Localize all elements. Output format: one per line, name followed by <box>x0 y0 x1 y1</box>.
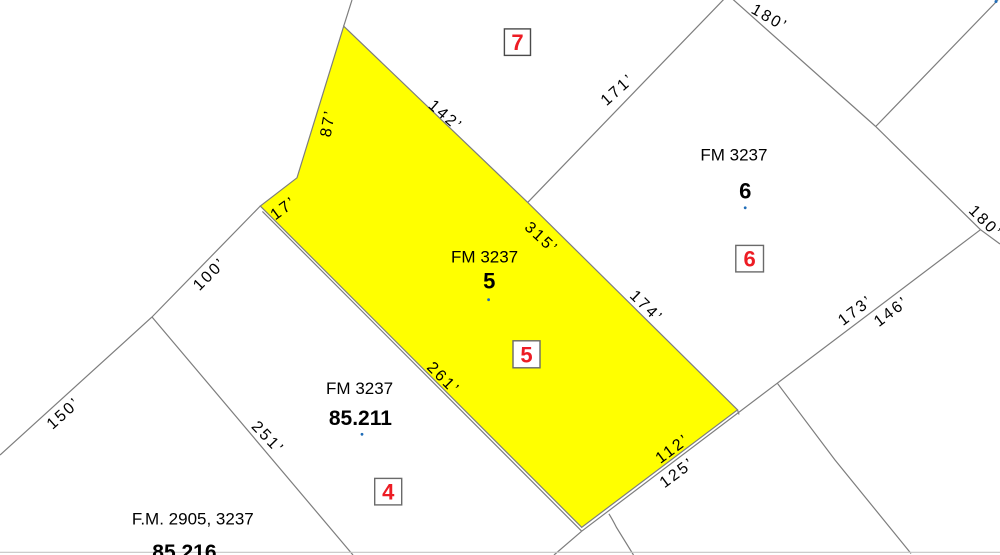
svg-text:6: 6 <box>743 247 755 272</box>
svg-text:FM 3237: FM 3237 <box>326 379 393 398</box>
svg-text:7: 7 <box>511 30 523 55</box>
svg-text:5: 5 <box>483 269 495 294</box>
svg-text:85.211: 85.211 <box>329 407 392 430</box>
svg-text:FM 3237: FM 3237 <box>451 248 518 267</box>
svg-text:5: 5 <box>520 342 532 367</box>
svg-text:F.M. 2905, 3237: F.M. 2905, 3237 <box>132 510 254 529</box>
svg-text:FM 3237: FM 3237 <box>700 146 767 165</box>
svg-text:6: 6 <box>739 179 751 204</box>
svg-text:4: 4 <box>382 480 395 505</box>
svg-text:85.216: 85.216 <box>152 541 216 555</box>
